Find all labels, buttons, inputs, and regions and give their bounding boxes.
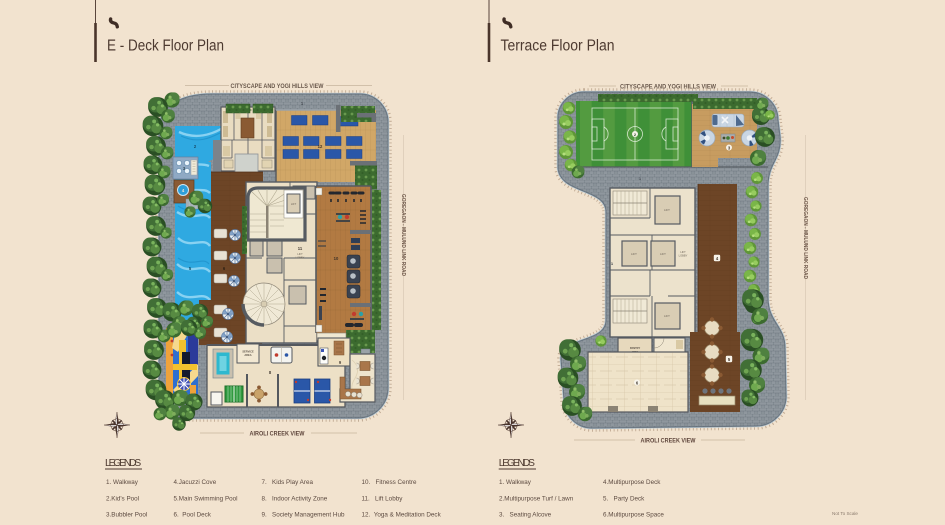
svg-text:1. Walkway: 1. Walkway <box>499 479 532 486</box>
svg-text:1. Walkway: 1. Walkway <box>106 479 139 486</box>
svg-text:3.Bubbler Pool: 3.Bubbler Pool <box>106 512 147 519</box>
svg-text:4.Jacuzzi Cove: 4.Jacuzzi Cove <box>174 479 217 486</box>
svg-text:11. Lift Lobby: 11. Lift Lobby <box>362 495 404 502</box>
svg-text:LEGENDS: LEGENDS <box>499 458 536 469</box>
svg-text:10: 10 <box>334 256 339 261</box>
svg-text:3. Seating Alcove: 3. Seating Alcove <box>499 512 552 519</box>
svg-text:AIROLI CREEK VIEW: AIROLI CREEK VIEW <box>641 438 697 445</box>
svg-text:5.Main Swimming Pool: 5.Main Swimming Pool <box>174 495 238 502</box>
svg-text:11: 11 <box>298 246 303 251</box>
svg-text:12: 12 <box>318 144 323 149</box>
svg-text:6. Pool Deck: 6. Pool Deck <box>174 512 212 519</box>
svg-text:LIFT: LIFT <box>680 250 686 254</box>
svg-text:2.Multipurpose Turf / Lawn: 2.Multipurpose Turf / Lawn <box>499 495 574 502</box>
svg-text:7. Kids Play Area: 7. Kids Play Area <box>262 479 314 486</box>
svg-text:GOREGAON - MULUND LINK ROAD: GOREGAON - MULUND LINK ROAD <box>400 194 406 276</box>
svg-text:6.Multipurpose Space: 6.Multipurpose Space <box>603 512 664 519</box>
svg-text:4.Multipurpose Deck: 4.Multipurpose Deck <box>603 479 661 486</box>
svg-text:LOBBY: LOBBY <box>296 255 305 259</box>
svg-text:Terrace Floor Plan: Terrace Floor Plan <box>501 38 615 55</box>
svg-text:GOREGAON - MULUND LINK ROAD: GOREGAON - MULUND LINK ROAD <box>802 197 808 279</box>
svg-text:PANTRY: PANTRY <box>630 346 641 350</box>
svg-text:LEGENDS: LEGENDS <box>105 458 142 469</box>
svg-text:2.Kid's Pool: 2.Kid's Pool <box>106 495 139 502</box>
svg-text:LIFT: LIFT <box>664 314 670 318</box>
svg-text:E - Deck Floor Plan: E - Deck Floor Plan <box>107 38 224 55</box>
svg-text:CITYSCAPE AND YOGI HILLS VIEW: CITYSCAPE AND YOGI HILLS VIEW <box>231 84 324 90</box>
svg-text:LIFT: LIFT <box>664 208 670 212</box>
svg-text:Not To Scale: Not To Scale <box>832 511 858 516</box>
svg-text:10. Fitness Centre: 10. Fitness Centre <box>362 479 417 486</box>
svg-text:12. Yoga & Meditation Deck: 12. Yoga & Meditation Deck <box>362 512 442 519</box>
svg-text:8. Indoor Activity Zone: 8. Indoor Activity Zone <box>262 495 328 502</box>
svg-text:LOBBY: LOBBY <box>679 254 688 258</box>
svg-text:LIFT: LIFT <box>291 202 297 206</box>
svg-text:SERVICE: SERVICE <box>242 350 254 354</box>
svg-text:AREA: AREA <box>244 353 251 357</box>
svg-text:LIFT: LIFT <box>660 252 666 256</box>
svg-text:LIFT: LIFT <box>297 252 303 256</box>
svg-text:LIFT: LIFT <box>631 252 637 256</box>
svg-text:9. Society Management Hub: 9. Society Management Hub <box>262 512 345 519</box>
svg-text:5. Party Deck: 5. Party Deck <box>603 495 645 502</box>
svg-text:AIROLI CREEK VIEW: AIROLI CREEK VIEW <box>250 431 306 438</box>
